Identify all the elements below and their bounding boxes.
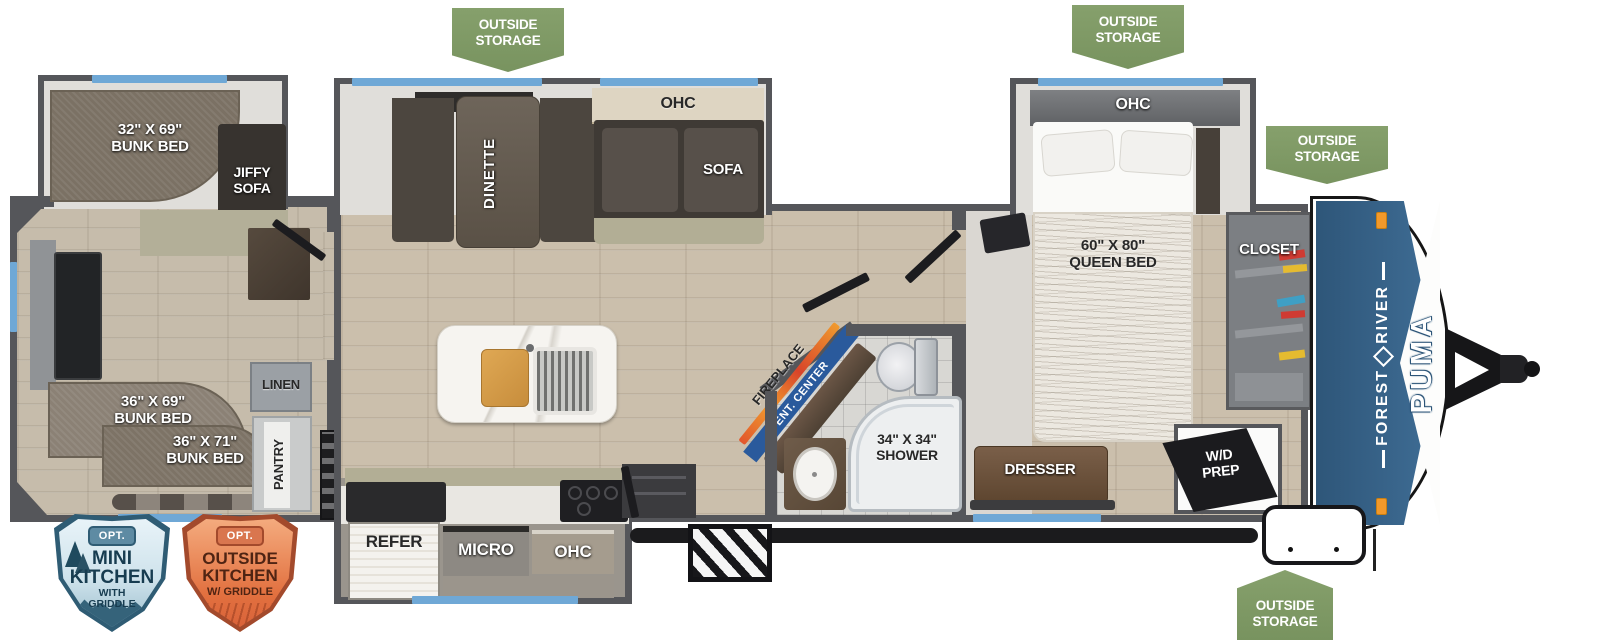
cutting-board — [481, 349, 529, 407]
ohc-dinette-label: OHC — [630, 95, 726, 113]
closet-label: CLOSET — [1228, 242, 1310, 259]
outside-kitchen-subtitle: W/ GRIDDLE — [207, 586, 273, 599]
outside-kitchen-title-2: KITCHEN — [202, 567, 278, 586]
outside-storage-label: OUTSIDE STORAGE — [1294, 126, 1359, 165]
outside-kitchen-title-1: OUTSIDE — [202, 550, 278, 567]
brand-dash — [1382, 450, 1385, 468]
pillow-right — [1119, 130, 1194, 177]
dinette-bench-right-end — [540, 214, 602, 242]
brand-dash — [1382, 262, 1385, 280]
entry-steps — [688, 524, 772, 582]
linen-label: LINEN — [250, 378, 312, 393]
dresser-base — [970, 500, 1115, 510]
outside-storage-badge-top-right: OUTSIDE STORAGE — [1072, 5, 1184, 69]
bracket-bolt — [1288, 547, 1293, 552]
burner — [568, 486, 582, 500]
dinette-bench-left — [392, 98, 454, 218]
queen-bed-label: 60" X 80" QUEEN BED — [1040, 238, 1186, 272]
stabilizer-cord — [1373, 529, 1376, 571]
sofa-bench-ledge — [594, 218, 764, 244]
stove — [560, 480, 628, 522]
burner — [577, 502, 591, 516]
entry-tread — [632, 476, 686, 479]
closet-clothes — [1279, 349, 1306, 360]
bathroom-top-wall — [846, 324, 966, 336]
pantry-label: PANTRY — [272, 428, 287, 502]
island-sink — [533, 347, 597, 415]
cooktop — [346, 482, 446, 522]
outside-storage-label: OUTSIDE STORAGE — [1252, 598, 1317, 640]
sink-drain — [812, 472, 817, 477]
micro-label: MICRO — [443, 540, 529, 559]
kitchen-island — [437, 325, 617, 423]
burner — [586, 486, 600, 500]
toilet-tank — [914, 338, 938, 396]
mini-kitchen-title-2: KITCHEN — [70, 568, 154, 588]
brand-river: RIVER — [1374, 285, 1392, 344]
closet-drawer — [1235, 373, 1303, 401]
opt-tag: OPT. — [88, 526, 136, 546]
window-kitchen-bumpout — [412, 596, 578, 604]
sink-faucet — [526, 344, 534, 352]
window-dinette-slideout — [352, 78, 542, 86]
bathroom-left-wall — [765, 391, 777, 515]
puma-wordmark: PUMA — [1404, 280, 1440, 446]
outside-kitchen-badge-face: OPT. OUTSIDE KITCHEN W/ GRIDDLE — [187, 519, 293, 627]
outside-storage-badge-bottom: OUTSIDE STORAGE — [1237, 570, 1333, 640]
mini-kitchen-badge-face: OPT. MINI KITCHEN WITH GRIDDLE — [59, 519, 165, 627]
shower-label: 34" X 34" SHOWER — [856, 432, 958, 463]
bath-vanity — [784, 438, 846, 510]
jiffy-sofa-label: JIFFY SOFA — [210, 165, 294, 196]
outside-storage-label: OUTSIDE STORAGE — [475, 8, 540, 49]
outside-storage-badge-front: OUTSIDE STORAGE — [1266, 126, 1388, 184]
window-bedroom-slideout — [1038, 78, 1223, 86]
closet-shelf — [1235, 323, 1303, 338]
mini-kitchen-title-1: MINI — [92, 549, 132, 568]
dinette-label: DINETTE — [482, 118, 499, 228]
propane-bracket — [1262, 505, 1366, 565]
brand-puma: PUMA — [1406, 312, 1439, 413]
tv-wall-panel — [30, 240, 56, 390]
kitchen-lower-cabinets — [443, 576, 614, 598]
window-rear-slideout — [92, 75, 227, 83]
bedside-cabinet — [1196, 128, 1220, 214]
entry-tread — [632, 492, 686, 495]
bracket-bolt — [1334, 547, 1339, 552]
marker-light-top — [1376, 212, 1387, 229]
dinette-bench-left-end — [392, 214, 454, 242]
grass-texture — [187, 603, 293, 627]
outside-kitchen-option-badge: OPT. OUTSIDE KITCHEN W/ GRIDDLE — [182, 514, 298, 632]
pillow-left — [1040, 129, 1115, 177]
ohc-kitchen-label: OHC — [532, 542, 614, 561]
mini-kitchen-option-badge: OPT. MINI KITCHEN WITH GRIDDLE — [54, 514, 170, 632]
closet-clothes — [1277, 295, 1306, 308]
window-rear-wall — [10, 262, 17, 332]
sofa-cushion — [602, 128, 678, 212]
brand-forest: FOREST — [1374, 369, 1392, 446]
hitch-ball-knob — [1524, 361, 1540, 377]
window-bedroom-bottom — [973, 514, 1101, 522]
ohc-bedroom-label: OHC — [1085, 96, 1181, 114]
burner — [604, 486, 618, 500]
window-sofa-slideout — [600, 78, 758, 86]
sofa-label: SOFA — [690, 162, 756, 179]
fr-diamond-logo — [1372, 345, 1393, 366]
closet-clothes — [1281, 310, 1305, 319]
mini-kitchen-subtitle: WITH GRIDDLE — [88, 588, 135, 611]
opt-tag: OPT. — [216, 526, 264, 546]
tv — [54, 252, 102, 380]
queen-bed-head — [1033, 122, 1193, 214]
refer-label: REFER — [348, 532, 440, 551]
marker-light-bottom — [1376, 498, 1387, 515]
bunk-bed-36x69-label: 36" X 69" BUNK BED — [78, 394, 228, 428]
forest-river-wordmark: RIVER FOREST — [1368, 240, 1398, 490]
outside-storage-label: OUTSIDE STORAGE — [1095, 5, 1160, 46]
outside-storage-badge-top-left: OUTSIDE STORAGE — [452, 8, 564, 72]
dresser-label: DRESSER — [974, 462, 1106, 479]
floorplan-canvas: OUTSIDE STORAGE OUTSIDE STORAGE OUTSIDE … — [0, 0, 1600, 640]
bunk-bed-32x69-label: 32" X 69" BUNK BED — [75, 122, 225, 156]
bedroom-wall-stub — [952, 206, 966, 230]
closet-clothes — [1283, 264, 1308, 273]
